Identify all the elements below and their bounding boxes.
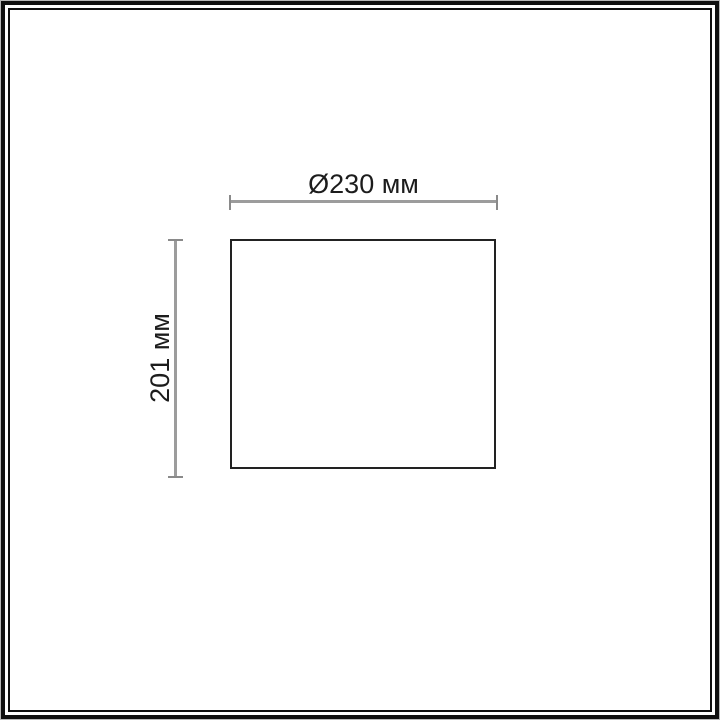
height-dimension-tick-top xyxy=(168,239,183,241)
dimension-diagram: Ø230 мм 201 мм xyxy=(0,0,720,720)
height-dimension-label: 201 мм xyxy=(145,278,175,438)
width-dimension-line xyxy=(230,200,497,203)
height-dimension-tick-bottom xyxy=(168,476,183,478)
product-outline-rect xyxy=(230,239,496,469)
width-dimension-label: Ø230 мм xyxy=(230,168,497,200)
